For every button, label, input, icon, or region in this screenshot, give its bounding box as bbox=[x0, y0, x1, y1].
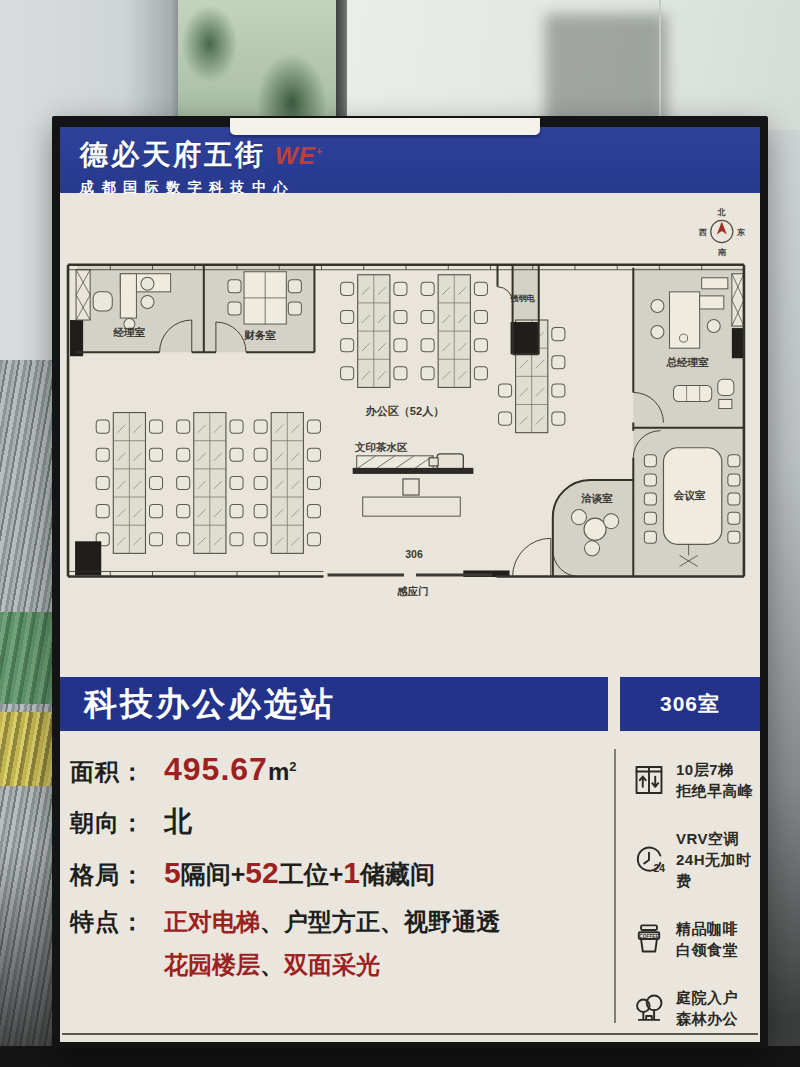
banner-room-number: 306室 bbox=[620, 677, 760, 731]
floorplan-poster: 德必天府五街 WE+ 成都国际数字科技中心 bbox=[52, 116, 768, 1048]
layout-storage-count: 1 bbox=[343, 856, 360, 890]
spec-area: 面积： 495.67 m2 bbox=[70, 751, 612, 788]
layout-rooms-count: 5 bbox=[164, 856, 181, 890]
pillar bbox=[403, 479, 419, 495]
svg-text:24: 24 bbox=[654, 863, 666, 874]
spec-layout: 格局： 5隔间+52工位+1储藏间 bbox=[70, 856, 612, 891]
spec-area-value: 495.67 bbox=[164, 751, 268, 788]
chat-table bbox=[584, 518, 606, 540]
layout-desks-count: 52 bbox=[245, 856, 278, 890]
spec-area-unit: m2 bbox=[268, 758, 297, 786]
amenities-list: 10层7梯拒绝早高峰 24 VRV空调24H无加时费 bbox=[616, 747, 760, 1033]
spec-layout-label: 格局： bbox=[70, 859, 164, 891]
label-power: 强弱电 bbox=[510, 294, 535, 303]
coffee-icon: COFFEE bbox=[632, 922, 666, 956]
svg-text:COFFEE: COFFEE bbox=[639, 934, 658, 939]
label-unit-306: 306 bbox=[405, 548, 423, 560]
poster-clip bbox=[230, 118, 540, 135]
details-section: 面积： 495.67 m2 朝向： 北 格局： 5隔间+52工位+1储藏间 特点… bbox=[60, 731, 760, 1033]
trees-icon bbox=[632, 991, 666, 1025]
spec-facing-value: 北 bbox=[164, 803, 192, 841]
reception-counter bbox=[363, 497, 461, 516]
svg-text:北: 北 bbox=[717, 207, 726, 217]
amenity-coffee: COFFEE 精品咖啡白领食堂 bbox=[632, 918, 760, 960]
amenity-ac: 24 VRV空调24H无加时费 bbox=[632, 828, 760, 891]
svg-text:南: 南 bbox=[718, 248, 727, 257]
amenity-garden-text: 庭院入户森林办公 bbox=[676, 987, 738, 1029]
amenity-coffee-text: 精品咖啡白领食堂 bbox=[676, 918, 738, 960]
label-sensor-door: 感应门 bbox=[396, 585, 429, 597]
spec-features-label: 特点： bbox=[70, 906, 164, 938]
label-print: 文印茶水区 bbox=[355, 441, 408, 453]
elevator-icon bbox=[632, 763, 666, 797]
brand-logo: 德必天府五街 bbox=[80, 136, 266, 174]
compass: 北 东 南 西 bbox=[699, 207, 745, 256]
brand-we-mark: WE+ bbox=[275, 142, 323, 170]
banner-title: 科技办公必选站 bbox=[60, 677, 608, 731]
poster-body: 德必天府五街 WE+ 成都国际数字科技中心 bbox=[60, 127, 760, 1042]
svg-text:西: 西 bbox=[699, 228, 707, 237]
label-office: 办公区（52人） bbox=[365, 405, 445, 418]
title-banner: 科技办公必选站 306室 bbox=[60, 677, 760, 731]
label-manager: 经理室 bbox=[113, 326, 146, 338]
label-chat: 洽谈室 bbox=[580, 492, 613, 505]
printer bbox=[437, 454, 463, 470]
floorplan-svg: 北 东 南 西 经理室 财务室 强弱电 总经理室 办公区（52人） 文印茶水区 … bbox=[63, 201, 757, 604]
floor-shadow bbox=[0, 1046, 800, 1067]
spec-area-label: 面积： bbox=[70, 756, 164, 788]
compass-needle bbox=[717, 221, 727, 234]
spec-features-1: 特点： 正对电梯、户型方正、视野通透 bbox=[70, 906, 612, 938]
clock-24-icon: 24 bbox=[632, 843, 666, 877]
label-finance: 财务室 bbox=[243, 329, 276, 341]
label-conference: 会议室 bbox=[673, 489, 706, 502]
glass-reflection bbox=[545, 14, 667, 132]
banner-gap bbox=[608, 677, 620, 731]
amenity-garden: 庭院入户森林办公 bbox=[632, 987, 760, 1029]
amenity-elevator: 10层7梯拒绝早高峰 bbox=[632, 759, 760, 801]
spec-facing: 朝向： 北 bbox=[70, 803, 612, 841]
label-gm: 总经理室 bbox=[666, 356, 710, 368]
poster-header: 德必天府五街 WE+ 成都国际数字科技中心 bbox=[60, 127, 760, 193]
spec-list: 面积： 495.67 m2 朝向： 北 格局： 5隔间+52工位+1储藏间 特点… bbox=[70, 747, 612, 1033]
shaft-block bbox=[511, 322, 539, 354]
wall-right bbox=[766, 130, 800, 1067]
amenity-ac-text: VRV空调24H无加时费 bbox=[676, 828, 760, 891]
amenity-elevator-text: 10层7梯拒绝早高峰 bbox=[676, 759, 754, 801]
poster-bottom-rule bbox=[62, 1033, 758, 1035]
svg-text:东: 东 bbox=[736, 227, 745, 237]
floorplan: 北 东 南 西 经理室 财务室 强弱电 总经理室 办公区（52人） 文印茶水区 … bbox=[60, 193, 760, 669]
spec-facing-label: 朝向： bbox=[70, 807, 164, 839]
spec-features-2: 花园楼层、双面采光 bbox=[70, 949, 612, 981]
